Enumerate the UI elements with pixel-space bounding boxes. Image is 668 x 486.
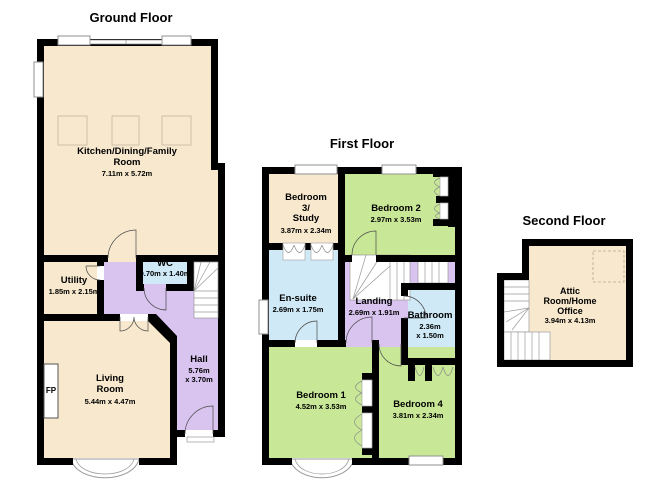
bay-window-bedroom1 [290,459,354,478]
bay-window-living [71,459,139,478]
ensuite-area [269,250,338,340]
fireplace [44,364,58,418]
window [259,300,268,334]
kitchen-room-area [44,46,218,262]
second-floor-plan [497,239,633,367]
window [409,456,443,465]
bedroom3-area [269,174,338,243]
window [162,36,191,45]
front-door-step [187,437,214,442]
bedroom1-area [269,347,372,458]
staircase-ground [194,262,218,318]
window [295,165,337,174]
floorplan-page: Ground Floor Kitchen/Dining/Family Room … [0,0,668,486]
ground-floor-plan [34,36,225,478]
living-room-area [44,321,172,458]
wc-area [143,262,187,284]
first-floor-plan [259,165,462,478]
floorplan-drawing [0,0,668,486]
window [382,165,416,174]
utility-room-area [44,262,97,314]
window [34,62,43,97]
window [58,36,90,45]
